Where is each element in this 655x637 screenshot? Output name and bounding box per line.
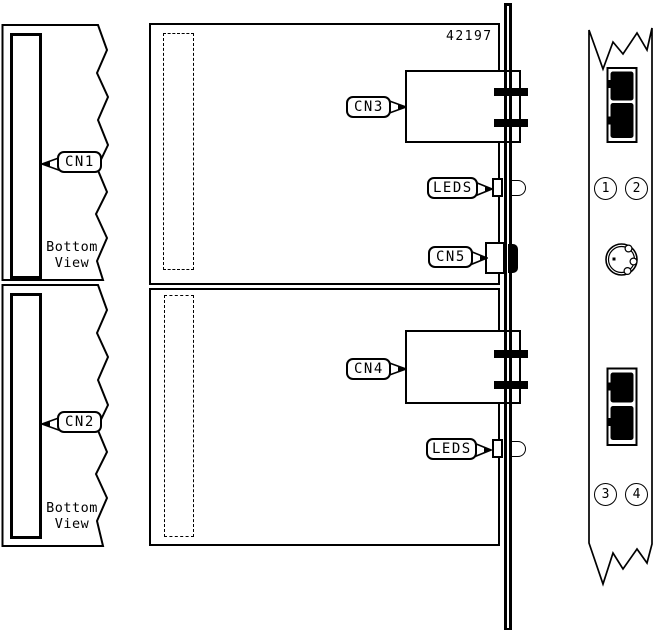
cn3-tab-upper bbox=[494, 88, 528, 96]
bracket-rail-left bbox=[504, 3, 507, 630]
bracket-top-cap bbox=[504, 3, 512, 6]
dual-jack-top bbox=[607, 68, 637, 142]
bracket-rail-right bbox=[509, 3, 512, 630]
cn4-tab-upper bbox=[494, 350, 528, 358]
caption-line: Bottom bbox=[38, 240, 106, 256]
port-number-4: 4 bbox=[625, 483, 648, 506]
dual-jack-bottom bbox=[607, 369, 637, 446]
part-number: 42197 bbox=[446, 29, 493, 44]
callout-cn4: CN4 bbox=[346, 358, 391, 380]
mini-din-connector bbox=[606, 244, 637, 275]
callout-cn2: CN2 bbox=[57, 411, 102, 433]
bottom-view1-caption: Bottom View bbox=[38, 240, 106, 271]
hardware-diagram: 42197 Bottom View Bottom View CN1 CN2 CN… bbox=[0, 0, 655, 637]
hidden-connector-outline-bottom bbox=[164, 295, 194, 537]
bracket-bottom-cap bbox=[504, 628, 512, 631]
caption-line: View bbox=[38, 517, 106, 533]
cn3-tab-lower bbox=[494, 119, 528, 127]
callout-leds-bottom: LEDS bbox=[426, 438, 477, 460]
board-section-bottom bbox=[149, 288, 500, 546]
led-top-body bbox=[492, 178, 503, 197]
port-number-2: 2 bbox=[625, 177, 648, 200]
led-bottom-body bbox=[492, 439, 503, 458]
caption-line: View bbox=[38, 256, 106, 272]
callout-cn1: CN1 bbox=[57, 151, 102, 173]
callout-leds-top: LEDS bbox=[427, 177, 478, 199]
caption-line: Bottom bbox=[38, 501, 106, 517]
cn4-tab-lower bbox=[494, 381, 528, 389]
bottom-view1-edge-connector bbox=[12, 35, 41, 278]
bottom-view2-caption: Bottom View bbox=[38, 501, 106, 532]
port-number-1: 1 bbox=[594, 177, 617, 200]
callout-cn5: CN5 bbox=[428, 246, 473, 268]
port-number-3: 3 bbox=[594, 483, 617, 506]
callout-cn3: CN3 bbox=[346, 96, 391, 118]
hidden-connector-outline-top bbox=[163, 33, 194, 270]
bottom-view2-edge-connector bbox=[12, 295, 41, 538]
cn5-connector-body bbox=[485, 242, 505, 274]
